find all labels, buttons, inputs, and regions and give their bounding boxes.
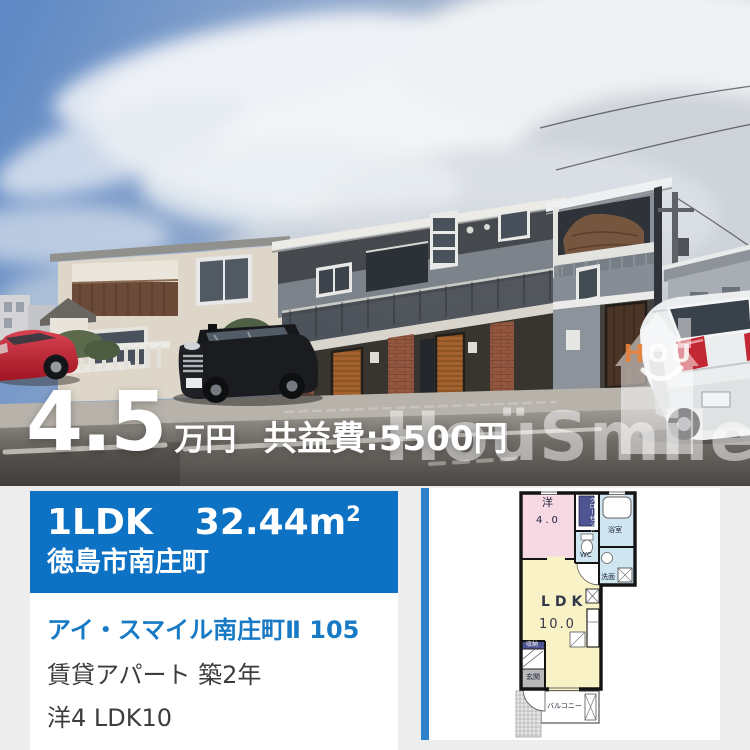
floorplan-panel: 洋 4.0 浴室 WC 洗面 LDK 10.0 収納 玄関 バルコニー クローゼ… [429,488,720,740]
room-info-label: 洋4 LDK10 [47,698,381,733]
listing-card[interactable]: H O U HoüSmile 4.5 万円 共益費:5500円 1LDK 32.… [0,0,750,750]
accent-bar [421,488,429,740]
washroom-label: 洗面 [601,574,615,581]
building-info-label: 賃貸アパート 築2年 [47,655,381,690]
summary-header: 1LDK 32.44m2 徳島市南庄町 [30,491,398,593]
area-label: 32.44m2 [195,500,361,547]
toilet-label: WC [580,552,592,559]
closet-label: クローゼット [579,497,595,526]
logo-letter-u: U [671,339,691,368]
entrance-label: 玄関 [526,674,540,681]
bath-label: 浴室 [608,527,622,534]
balcony-label: バルコニー [547,703,582,710]
ldk-size: 10.0 [539,618,576,631]
floorplan-card: 洋 4.0 浴室 WC 洗面 LDK 10.0 収納 玄関 バルコニー クローゼ… [421,488,720,740]
common-fee-label: 共益費:5500円 [263,411,507,460]
price-value: 4.5 [26,382,165,464]
layout-area-line: 1LDK 32.44m2 [47,500,381,547]
property-name-link[interactable]: アイ・スマイル南庄町Ⅱ 105 [47,610,381,645]
summary-card: 1LDK 32.44m2 徳島市南庄町 アイ・スマイル南庄町Ⅱ 105 賃貸アパ… [30,491,398,750]
floorplan-drawing: 洋 4.0 浴室 WC 洗面 LDK 10.0 収納 玄関 バルコニー クローゼ… [513,489,643,739]
western-room-label: 洋 [542,497,553,508]
logo-letter-o: O [647,339,668,368]
storage-label: 収納 [526,642,538,648]
location-label: 徳島市南庄町 [47,547,381,579]
price-overlay: 4.5 万円 共益費:5500円 [26,382,508,464]
price-unit: 万円 [174,414,236,459]
layout-label: 1LDK [47,500,153,547]
property-photo: H O U HoüSmile 4.5 万円 共益費:5500円 [0,0,750,486]
ldk-label: LDK [541,595,587,609]
logo-letter-h: H [624,339,645,368]
western-room-size: 4.0 [536,516,561,526]
summary-body: アイ・スマイル南庄町Ⅱ 105 賃貸アパート 築2年 洋4 LDK10 [30,593,398,750]
listing-info-section: 1LDK 32.44m2 徳島市南庄町 アイ・スマイル南庄町Ⅱ 105 賃貸アパ… [0,486,750,750]
